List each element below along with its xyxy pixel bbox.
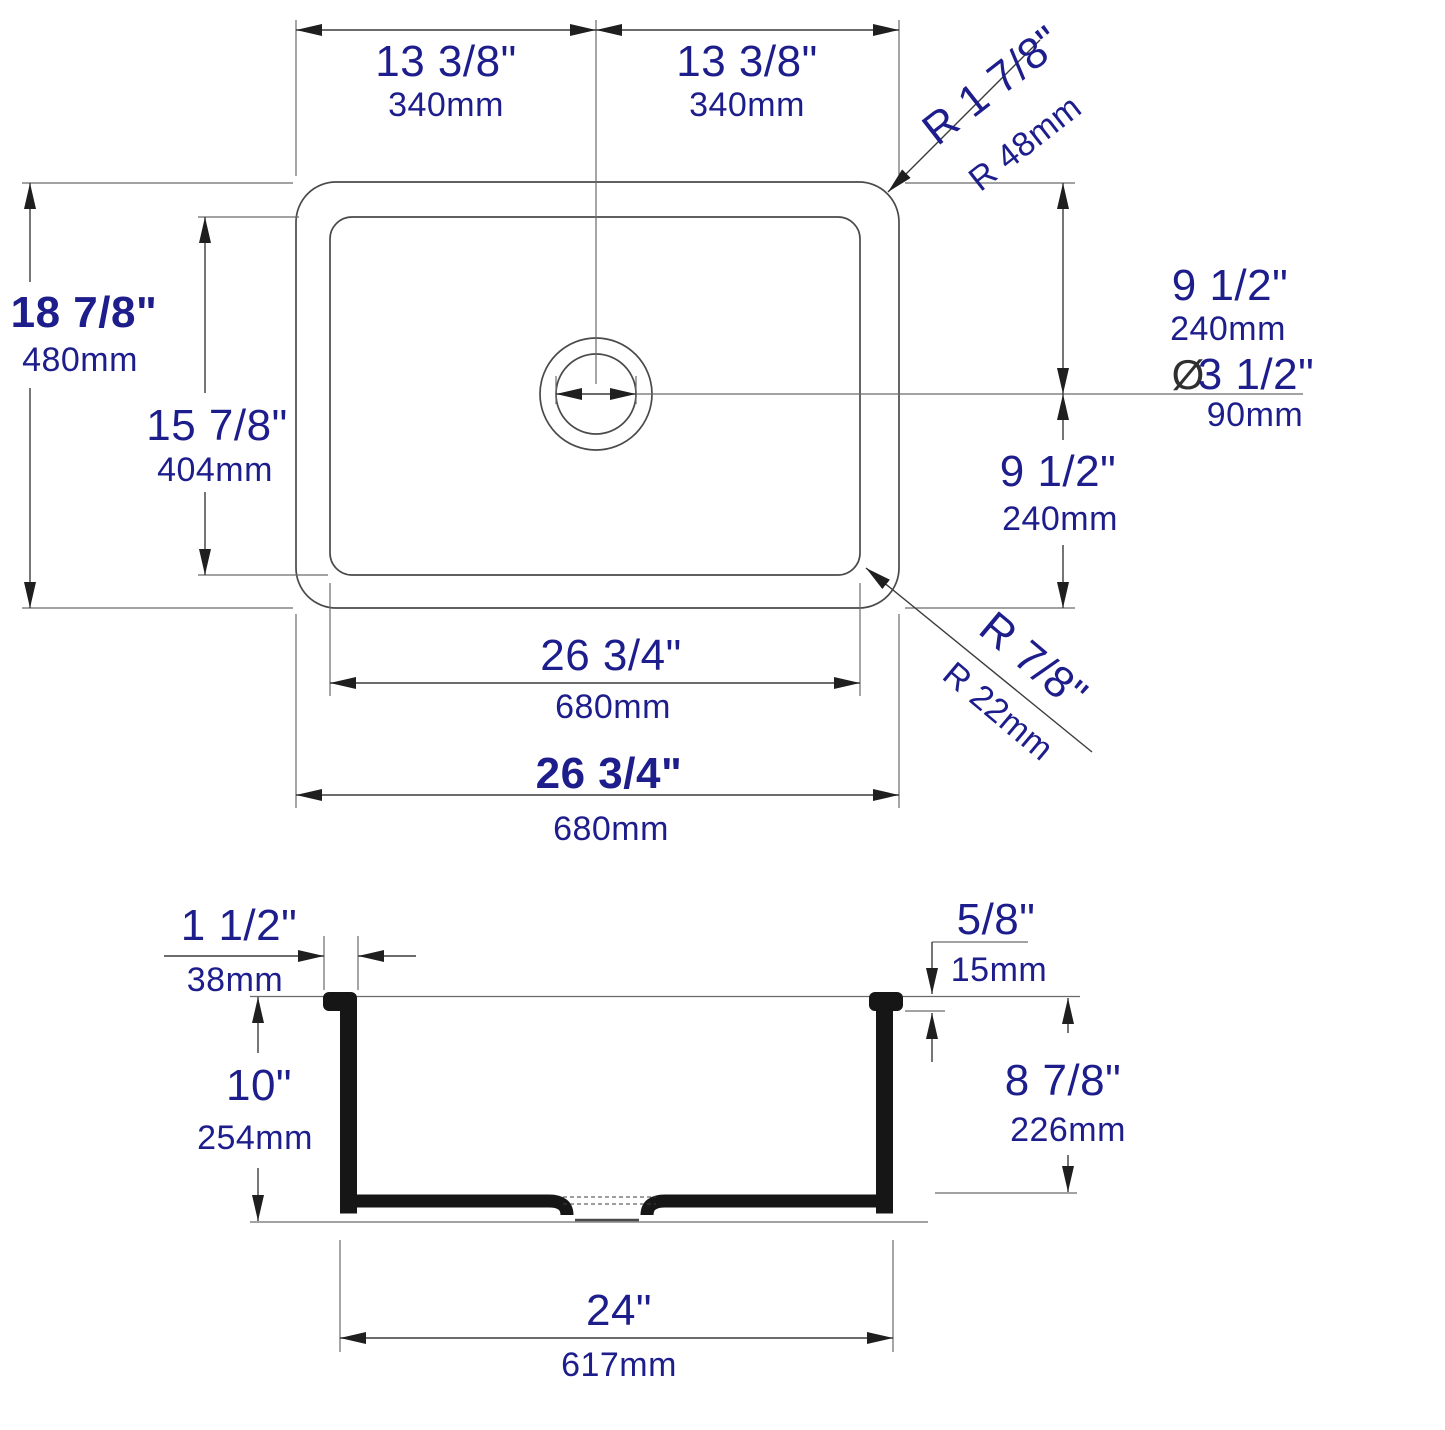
- plan-view: 13 3/8" 340mm 13 3/8" 340mm R 1 7/8" R 4…: [11, 17, 1315, 848]
- dim-overall-height-in: 10": [226, 1061, 292, 1110]
- dim-back-to-drain-mm: 240mm: [1170, 310, 1286, 348]
- section-floor-right: [647, 1201, 883, 1215]
- plan-outer-rim-outline: [296, 182, 899, 608]
- dim-bowl-depth-mm: 404mm: [157, 451, 273, 489]
- technical-drawing-page: 13 3/8" 340mm 13 3/8" 340mm R 1 7/8" R 4…: [0, 0, 1445, 1430]
- dim-bowl-width-mm: 680mm: [555, 688, 671, 726]
- dim-bowl-height-in: 8 7/8": [1005, 1056, 1121, 1105]
- dim-base-width-mm: 617mm: [561, 1346, 677, 1384]
- dim-overall-height-mm: 254mm: [197, 1119, 313, 1157]
- dim-bowl-width-in: 26 3/4": [540, 631, 681, 680]
- dim-overall-width-mm: 680mm: [553, 810, 669, 848]
- dim-half-width-left-mm: 340mm: [388, 86, 504, 124]
- sink-cross-section: [323, 992, 903, 1220]
- dim-half-width-right-mm: 340mm: [689, 86, 805, 124]
- dim-half-width-right-in: 13 3/8": [676, 37, 817, 86]
- section-extension-lines: [250, 936, 1080, 1352]
- section-view: 1 1/2" 38mm 10" 254mm 5/8" 15mm 8 7/8" 2…: [164, 895, 1126, 1384]
- dim-base-width-in: 24": [586, 1286, 652, 1335]
- plan-bowl-outline: [330, 217, 860, 575]
- dim-overall-width-in: 26 3/4": [536, 749, 683, 798]
- dim-rim-thickness-mm: 15mm: [951, 951, 1047, 989]
- dim-bowl-height-mm: 226mm: [1010, 1111, 1126, 1149]
- section-floor-left: [350, 1201, 567, 1215]
- drain-diameter-in: 3 1/2": [1198, 350, 1314, 399]
- dim-half-width-left-in: 13 3/8": [375, 37, 516, 86]
- dim-back-to-drain-in: 9 1/2": [1172, 261, 1288, 310]
- dim-rim-width-in: 1 1/2": [181, 901, 297, 950]
- dim-drain-to-front-mm: 240mm: [1002, 500, 1118, 538]
- dim-rim-width-mm: 38mm: [187, 961, 283, 999]
- dim-bowl-depth-in: 15 7/8": [146, 401, 287, 450]
- dim-overall-depth-mm: 480mm: [22, 341, 138, 379]
- dim-rim-thickness-in: 5/8": [957, 895, 1036, 944]
- dim-overall-depth-in: 18 7/8": [11, 288, 158, 337]
- sink-dimension-drawing: 13 3/8" 340mm 13 3/8" 340mm R 1 7/8" R 4…: [0, 0, 1445, 1430]
- drain-diameter-mm: 90mm: [1207, 396, 1303, 434]
- dim-drain-to-front-in: 9 1/2": [1000, 447, 1116, 496]
